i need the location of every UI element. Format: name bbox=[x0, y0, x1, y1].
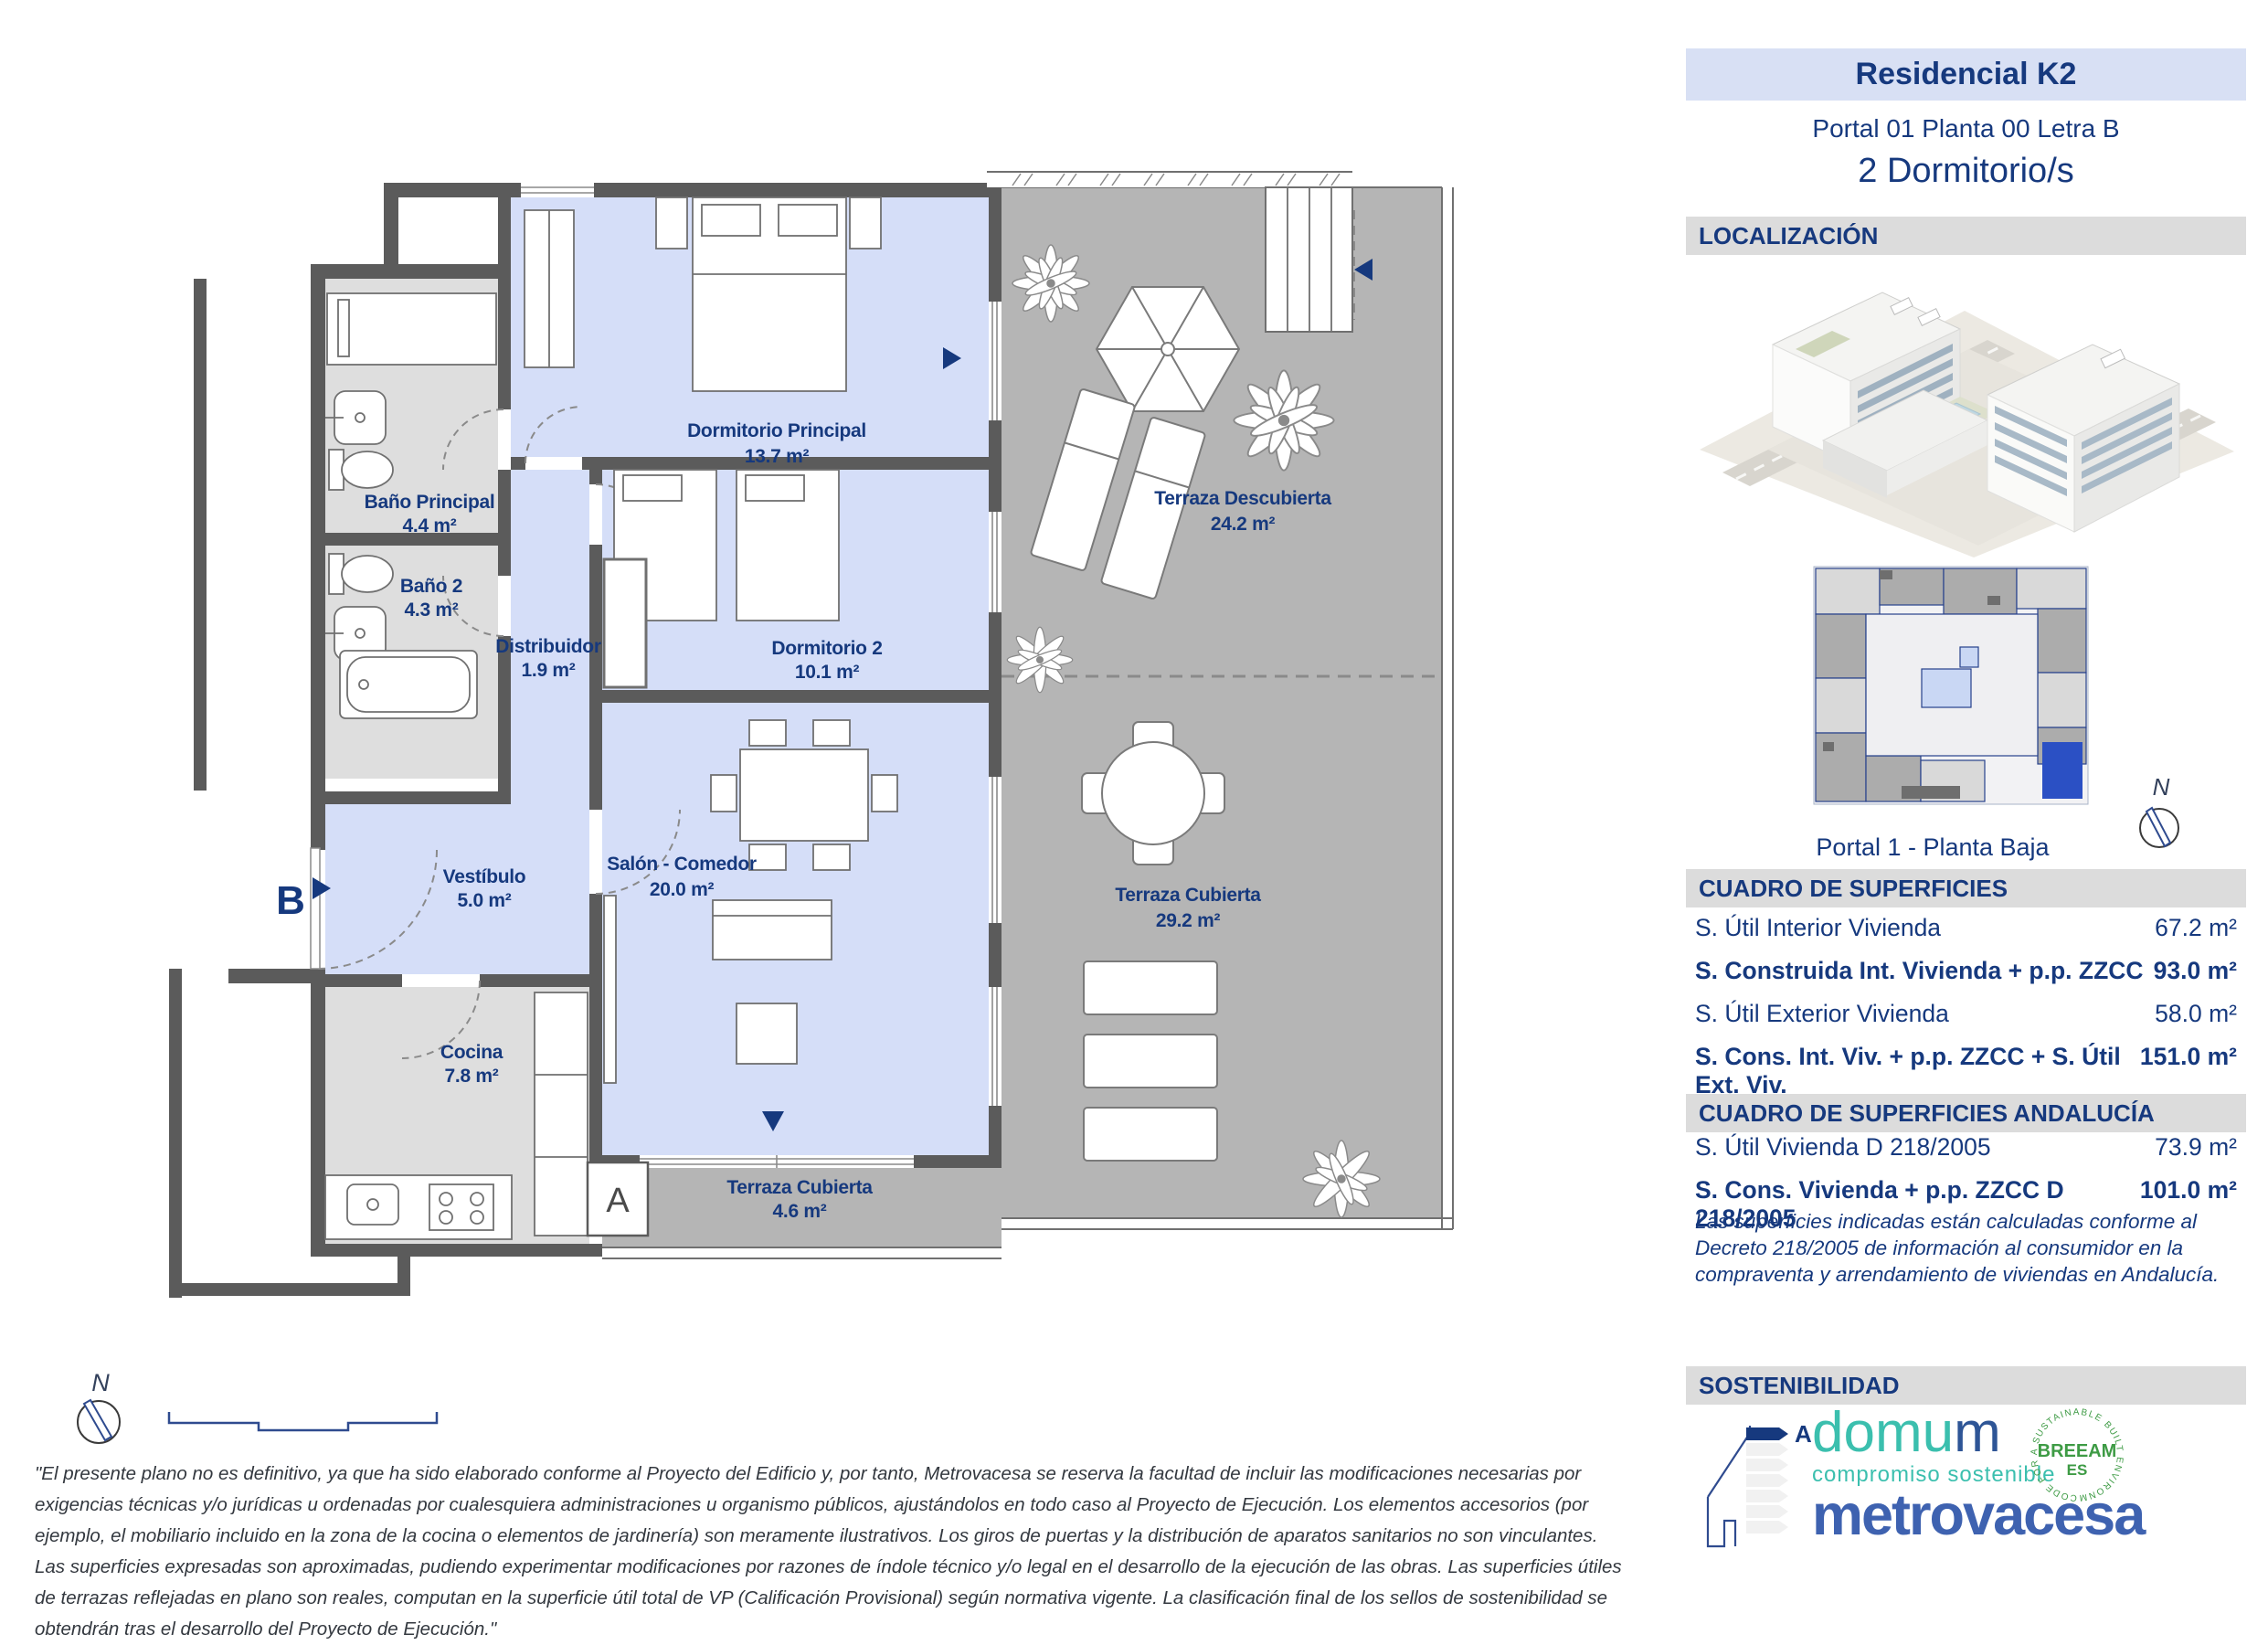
coffee-table bbox=[737, 1003, 797, 1064]
room-area: 1.9 m² bbox=[522, 660, 576, 681]
room-label: Distribuidor bbox=[495, 636, 601, 657]
tv-unit bbox=[604, 896, 616, 1083]
chair bbox=[711, 775, 737, 812]
section-header-localizacion: LOCALIZACIÓN bbox=[1686, 217, 2246, 255]
energy-rating-letter: A bbox=[1795, 1420, 1812, 1448]
room-label: Cocina bbox=[440, 1042, 503, 1063]
room-area: 29.2 m² bbox=[1156, 910, 1221, 931]
surfaces-table: S. Útil Interior Vivienda 67.2 m² S. Con… bbox=[1695, 914, 2237, 1086]
surface-row: S. Útil Exterior Vivienda 58.0 m² bbox=[1695, 1000, 2237, 1043]
bedroom-count: 2 Dormitorio/s bbox=[1686, 152, 2246, 191]
surface-value: 101.0 m² bbox=[2140, 1176, 2237, 1205]
legal-disclaimer: "El presente plano no es definitivo, ya … bbox=[35, 1459, 1629, 1645]
room-label: Dormitorio Principal bbox=[687, 420, 866, 441]
section-header-superficies: CUADRO DE SUPERFICIES bbox=[1686, 869, 2246, 907]
room-label: Terraza Cubierta bbox=[726, 1177, 873, 1198]
scale-bar bbox=[169, 1412, 437, 1430]
section-marker-a-label: A bbox=[606, 1182, 630, 1220]
section-header-superficies-andalucia: CUADRO DE SUPERFICIES ANDALUCÍA bbox=[1686, 1094, 2246, 1132]
nightstand bbox=[656, 197, 687, 249]
surface-row: S. Cons. Int. Viv. + p.p. ZZCC + S. Útil… bbox=[1695, 1043, 2237, 1086]
palm-plant bbox=[1234, 370, 1333, 470]
sofa bbox=[713, 900, 832, 960]
floorplan-sheet: { "header": { "title": "Residencial K2",… bbox=[0, 0, 2268, 1604]
north-label: N bbox=[91, 1369, 110, 1396]
palm-plant bbox=[1303, 1141, 1380, 1217]
wardrobe-2 bbox=[604, 559, 646, 687]
key-plan: N bbox=[1686, 559, 2246, 861]
domum-wordmark-teal: domu bbox=[1812, 1401, 1954, 1464]
surface-label: S. Construida Int. Vivienda + p.p. ZZCC bbox=[1695, 957, 2144, 985]
palm-plant bbox=[1007, 627, 1072, 692]
breeam-main-text: BREEAM bbox=[2038, 1441, 2117, 1461]
terrace-sofas bbox=[1084, 961, 1217, 1161]
surface-row: S. Construida Int. Vivienda + p.p. ZZCC … bbox=[1695, 957, 2237, 1000]
surface-row: S. Útil Interior Vivienda 67.2 m² bbox=[1695, 914, 2237, 957]
room-label: Terraza Descubierta bbox=[1154, 488, 1331, 509]
room-area: 20.0 m² bbox=[650, 879, 715, 900]
chair bbox=[813, 720, 850, 746]
room-area: 4.6 m² bbox=[773, 1201, 827, 1222]
surface-label: S. Útil Exterior Vivienda bbox=[1695, 1000, 1949, 1028]
surfaces-andalucia-table: S. Útil Vivienda D 218/2005 73.9 m² S. C… bbox=[1695, 1133, 2237, 1219]
surface-value: 73.9 m² bbox=[2155, 1133, 2237, 1162]
entrance-door-leaf bbox=[311, 848, 320, 969]
room-area: 5.0 m² bbox=[458, 890, 512, 911]
keyplan-north-label: N bbox=[2153, 773, 2170, 801]
room-label: Baño Principal bbox=[365, 492, 495, 513]
section-header-sostenibilidad: SOSTENIBILIDAD bbox=[1686, 1366, 2246, 1405]
room-label: Vestíbulo bbox=[443, 866, 526, 887]
keyplan-caption: Portal 1 - Planta Baja bbox=[1686, 833, 2179, 862]
dining-table bbox=[740, 749, 868, 841]
entrance-marker-b-label: B bbox=[276, 878, 305, 923]
chair bbox=[872, 775, 897, 812]
plan-compass: N bbox=[78, 1369, 120, 1443]
surface-value: 67.2 m² bbox=[2155, 914, 2237, 942]
decree-note: Las superficies indicadas están calculad… bbox=[1695, 1208, 2230, 1288]
surface-value: 151.0 m² bbox=[2140, 1043, 2237, 1071]
metrovacesa-logo: metrovacesa bbox=[1812, 1482, 2242, 1548]
surface-value: 93.0 m² bbox=[2154, 957, 2237, 985]
kitchen-tall-units bbox=[535, 992, 588, 1236]
domum-wordmark-blue: m bbox=[1954, 1401, 2001, 1464]
room-area: 10.1 m² bbox=[795, 662, 860, 683]
highlighted-unit bbox=[2042, 742, 2083, 799]
room-area: 24.2 m² bbox=[1211, 514, 1276, 535]
location-render-illustration bbox=[1686, 258, 2246, 557]
room-label: Baño 2 bbox=[400, 576, 462, 597]
breeam-sub-text: ES bbox=[2067, 1461, 2088, 1479]
room-vestibulo bbox=[325, 804, 589, 974]
floor-plan: A B Dormitorio Principal 13.7 m² Baño Pr… bbox=[0, 0, 1681, 1453]
surface-label: S. Cons. Int. Viv. + p.p. ZZCC + S. Útil… bbox=[1695, 1043, 2140, 1099]
room-area: 13.7 m² bbox=[745, 446, 810, 467]
room-area: 4.3 m² bbox=[405, 600, 459, 621]
room-area: 4.4 m² bbox=[403, 515, 457, 536]
page-title: Residencial K2 bbox=[1686, 48, 2246, 101]
surface-label: S. Útil Interior Vivienda bbox=[1695, 914, 1941, 942]
room-area: 7.8 m² bbox=[445, 1066, 499, 1087]
energy-rating-icon: A bbox=[1702, 1409, 1821, 1555]
terraza-cubierta-floor bbox=[1002, 676, 1442, 1218]
chair bbox=[749, 720, 786, 746]
nightstand bbox=[850, 197, 881, 249]
palm-plant bbox=[1012, 245, 1089, 322]
room-label: Salón - Comedor bbox=[607, 854, 757, 875]
surface-row: S. Útil Vivienda D 218/2005 73.9 m² bbox=[1695, 1133, 2237, 1176]
room-label: Terraza Cubierta bbox=[1115, 885, 1261, 906]
shower bbox=[327, 293, 496, 365]
sidebar: Residencial K2 Portal 01 Planta 00 Letra… bbox=[1686, 0, 2246, 1604]
chair bbox=[813, 844, 850, 870]
hob bbox=[429, 1184, 493, 1230]
surface-label: S. Útil Vivienda D 218/2005 bbox=[1695, 1133, 1991, 1162]
surface-value: 58.0 m² bbox=[2155, 1000, 2237, 1028]
unit-reference: Portal 01 Planta 00 Letra B bbox=[1686, 114, 2246, 143]
room-label: Dormitorio 2 bbox=[771, 638, 882, 659]
